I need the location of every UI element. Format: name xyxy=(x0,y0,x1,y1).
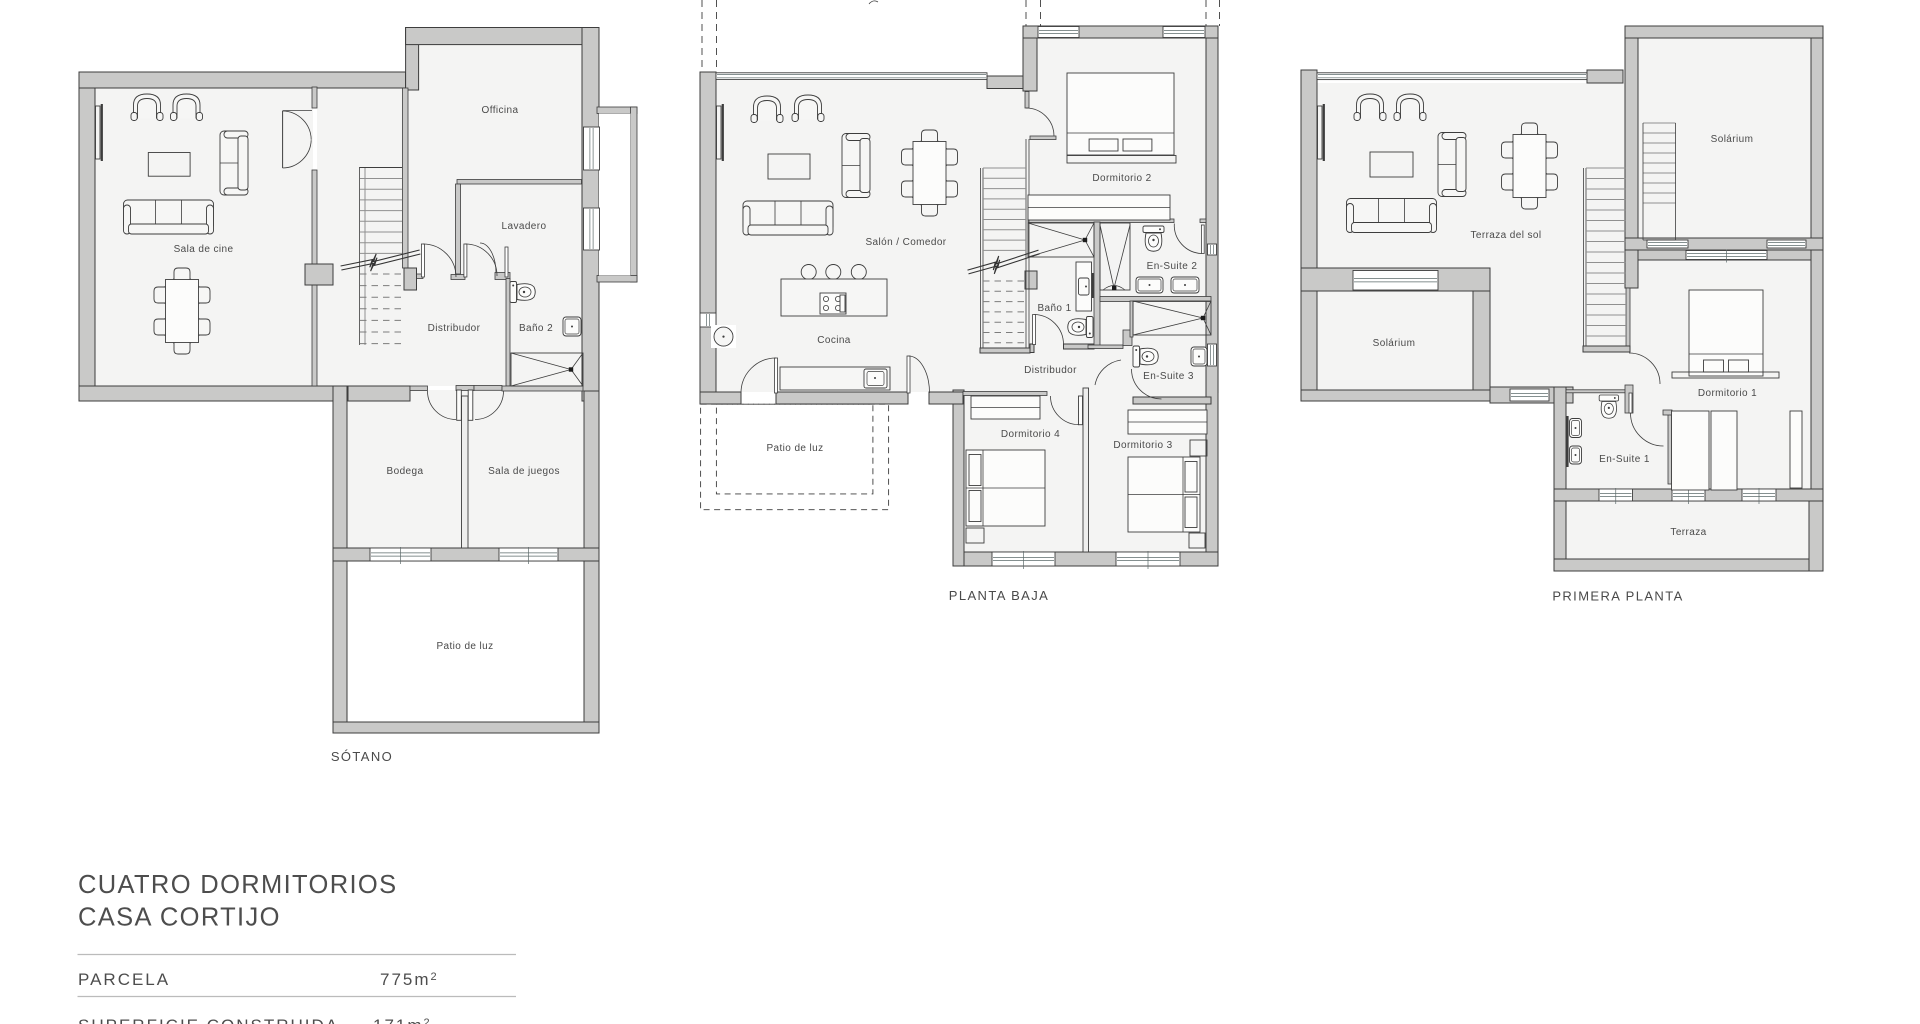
svg-text:Bodega: Bodega xyxy=(387,466,424,477)
svg-text:Terraza del sol: Terraza del sol xyxy=(1470,230,1541,241)
svg-text:775m2: 775m2 xyxy=(380,970,439,989)
svg-text:Dormitorio 3: Dormitorio 3 xyxy=(1113,440,1172,451)
svg-text:En-Suite 3: En-Suite 3 xyxy=(1143,371,1194,382)
svg-text:Sala de cine: Sala de cine xyxy=(174,244,234,255)
svg-text:Solárium: Solárium xyxy=(1711,134,1754,145)
svg-text:Lavadero: Lavadero xyxy=(502,221,547,232)
svg-text:Terraza: Terraza xyxy=(1670,527,1706,538)
svg-text:CASA CORTIJO: CASA CORTIJO xyxy=(78,904,281,932)
svg-text:En-Suite 1: En-Suite 1 xyxy=(1599,454,1650,465)
svg-text:Officina: Officina xyxy=(482,105,519,116)
svg-text:SUPERFICIE CONSTRUIDA: SUPERFICIE CONSTRUIDA xyxy=(78,1016,339,1024)
svg-text:En-Suite 2: En-Suite 2 xyxy=(1147,261,1198,272)
svg-text:Distribudor: Distribudor xyxy=(428,323,481,334)
svg-text:Baño 2: Baño 2 xyxy=(519,323,553,334)
svg-text:Salón / Comedor: Salón / Comedor xyxy=(865,237,946,248)
svg-text:Patio de luz: Patio de luz xyxy=(436,641,493,652)
svg-text:SÓTANO: SÓTANO xyxy=(331,749,393,764)
svg-text:Patio de luz: Patio de luz xyxy=(766,443,823,454)
svg-text:Cocina: Cocina xyxy=(817,335,851,346)
svg-text:Solárium: Solárium xyxy=(1373,338,1416,349)
svg-text:CUATRO DORMITORIOS: CUATRO DORMITORIOS xyxy=(78,871,397,899)
svg-text:PLANTA BAJA: PLANTA BAJA xyxy=(949,588,1049,603)
svg-text:Dormitorio 1: Dormitorio 1 xyxy=(1698,388,1757,399)
svg-text:Baño 1: Baño 1 xyxy=(1037,303,1071,314)
svg-text:Sala de juegos: Sala de juegos xyxy=(488,466,560,477)
svg-text:PRIMERA PLANTA: PRIMERA PLANTA xyxy=(1552,589,1683,604)
svg-text:171m2: 171m2 xyxy=(373,1016,432,1024)
svg-text:Distribudor: Distribudor xyxy=(1024,365,1077,376)
svg-text:Dormitorio 2: Dormitorio 2 xyxy=(1092,173,1151,184)
svg-text:Dormitorio 4: Dormitorio 4 xyxy=(1001,429,1060,440)
svg-text:PARCELA: PARCELA xyxy=(78,970,170,989)
